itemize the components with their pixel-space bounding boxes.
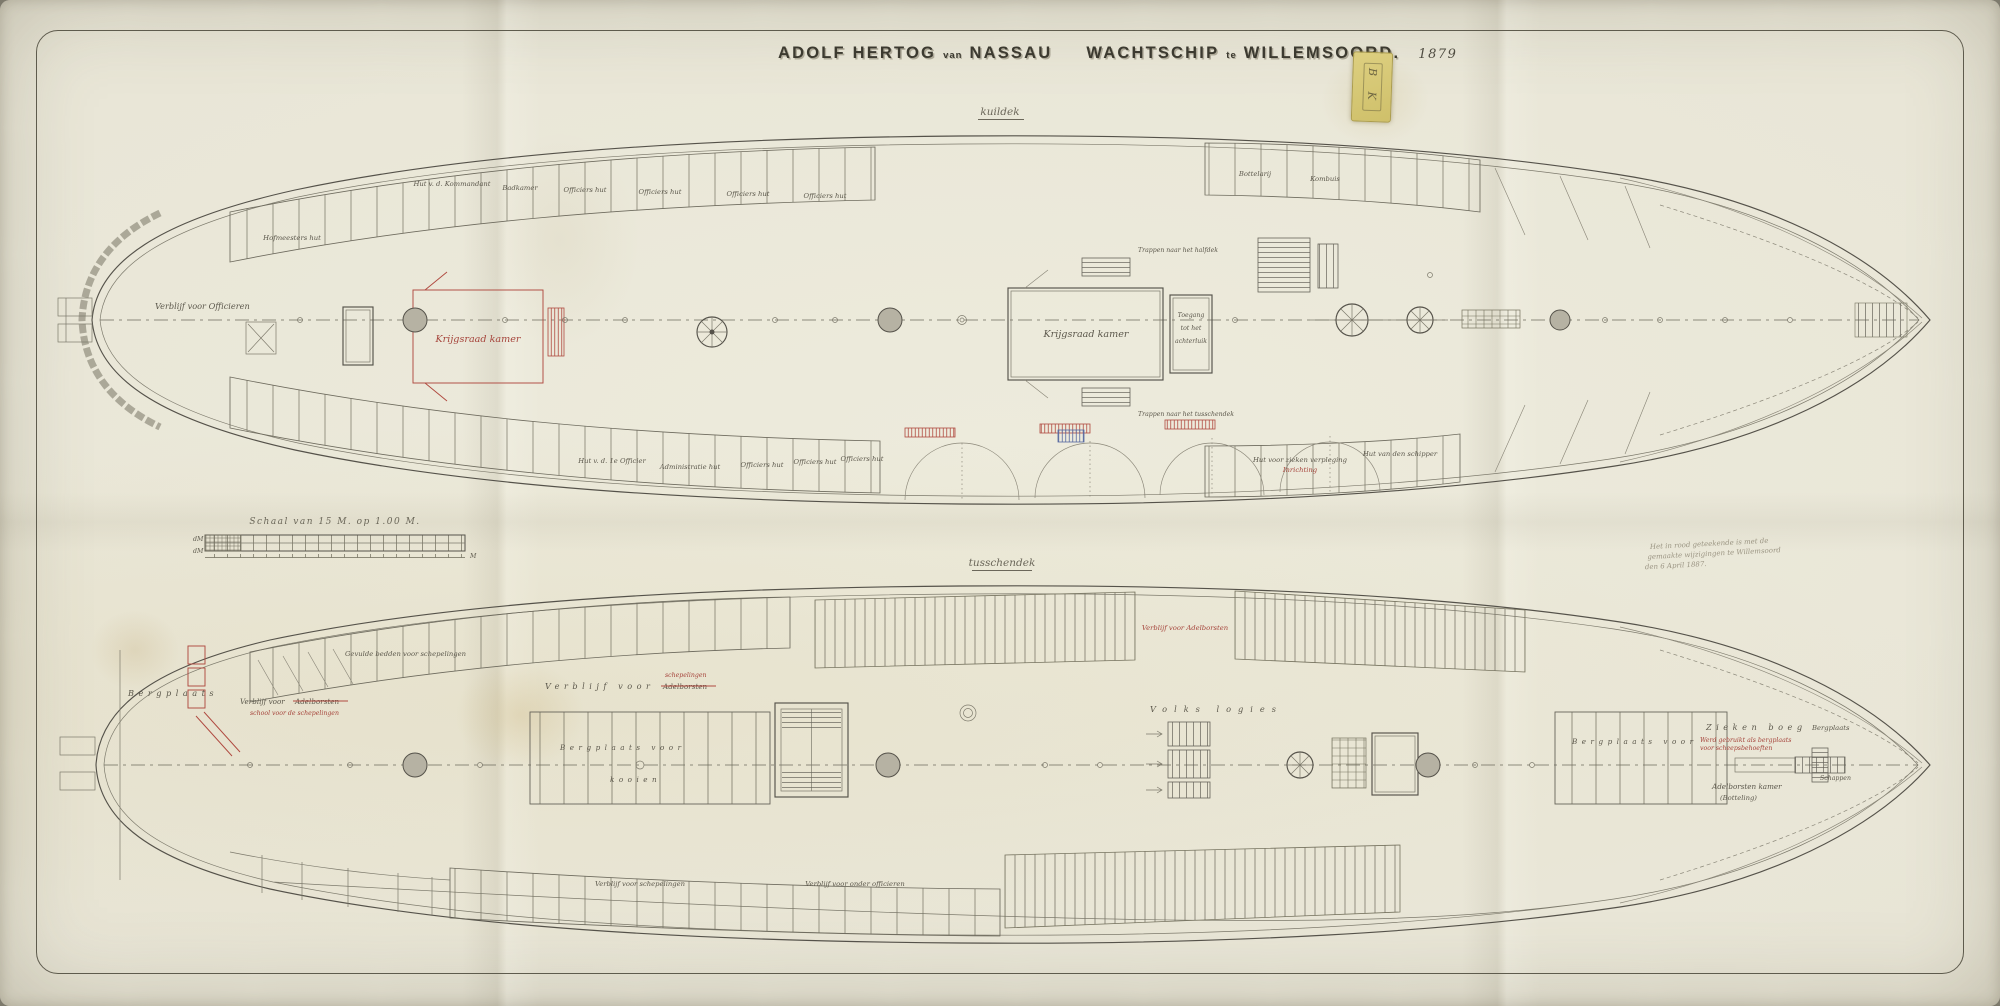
label-inrichting: Inrichting bbox=[1282, 466, 1318, 474]
adelborsten-stair-room bbox=[343, 307, 373, 365]
archival-photo: { "title": { "name1": "ADOLF HERTOG", "c… bbox=[0, 0, 2000, 1006]
label-bergplaats-voor: Bergplaats voor bbox=[1571, 737, 1698, 746]
label-trap-halfdek: Trappen naar het halfdek bbox=[1138, 247, 1218, 254]
label-schepelingen-red: schepelingen bbox=[665, 672, 706, 679]
label-verblijf-officieren: Verblijf voor Officieren bbox=[155, 301, 250, 311]
kuildek-plan: kuildek bbox=[58, 106, 1930, 504]
kuildek-cabin-band-bottom-aft bbox=[230, 377, 880, 493]
label-bergplaats-kooien: Bergplaats voor bbox=[559, 743, 686, 752]
lantern bbox=[960, 705, 976, 721]
anchor-winch-machinery bbox=[1258, 238, 1520, 336]
label-verblijf-adelborsten: Verblijf voor Adelborsten bbox=[1142, 624, 1228, 632]
capstan bbox=[697, 317, 727, 347]
label-bottelarij: Bottelarij bbox=[1238, 170, 1271, 178]
label-badkamer: Badkamer bbox=[501, 184, 538, 192]
label-hut-kommandant: Hut v. d. Kommandant bbox=[412, 180, 490, 188]
scale-bar: Schaal van 15 M. op 1.00 M. dM dM M bbox=[193, 517, 477, 560]
label-red-note-1: Werd gebruikt als bergplaats bbox=[1700, 737, 1791, 744]
label-ziekenboeg: Zieken boeg bbox=[1705, 722, 1807, 732]
scale-unit-right: M bbox=[469, 553, 477, 560]
tusschendek-deck-label: tusschendek bbox=[969, 557, 1036, 569]
scale-bar-tick-row bbox=[205, 554, 465, 558]
label-kombuis: Kombuis bbox=[1309, 175, 1340, 183]
scale-unit-left-bottom: dM bbox=[193, 548, 204, 555]
label-officiers-hut: Officiers hut bbox=[727, 190, 770, 198]
label-hut-1e-officier: Hut v. d. 1e Officier bbox=[577, 457, 646, 465]
kooi-storage-right bbox=[1555, 712, 1727, 804]
pencil-note-line3: den 6 April 1887. bbox=[1645, 560, 1707, 571]
kooi-storage-left bbox=[530, 712, 770, 804]
label-administratie-hut: Administratie hut bbox=[659, 463, 721, 471]
label-red-note-2: voor scheepsbehoeften bbox=[1700, 745, 1772, 752]
kuildek-cabin-band-bottom-fwd bbox=[1205, 434, 1460, 497]
label-trap-tusschendek: Trappen naar het tusschendek bbox=[1138, 411, 1234, 418]
label-officiers-hut: Officiers hut bbox=[804, 192, 847, 200]
main-mast-lower bbox=[876, 753, 900, 777]
hammock-rack-stack bbox=[1146, 722, 1210, 798]
label-krijgsraad-kamer-red: Krijgsraad kamer bbox=[435, 334, 522, 345]
mizzen-mast bbox=[403, 308, 427, 332]
label-officiers-hut-2: Officiers hut bbox=[841, 455, 884, 463]
label-botteling: (Botteling) bbox=[1720, 794, 1757, 802]
fore-mast-lower bbox=[1416, 753, 1440, 777]
tusschendek-plan: tusschendek bbox=[60, 557, 1930, 943]
label-toegang-3: achterluik bbox=[1175, 338, 1207, 345]
label-bergplaats-stern: Bergplaats bbox=[127, 688, 218, 698]
hammock-berths-bottom bbox=[1005, 845, 1400, 928]
toegang-room bbox=[1170, 295, 1212, 373]
kuildek-cabin-band-top-aft bbox=[230, 147, 875, 262]
stair-grid-lower bbox=[1082, 388, 1130, 406]
scale-unit-left-top: dM bbox=[193, 536, 204, 543]
label-adelborsten-kamer: Adelborsten kamer bbox=[1711, 782, 1782, 791]
stern-platform-lower bbox=[60, 737, 95, 790]
deck-fitting bbox=[1428, 273, 1433, 278]
label-volks-logies: Volks logies bbox=[1150, 704, 1283, 714]
label-officiers-hut-2: Officiers hut bbox=[741, 461, 784, 469]
label-toegang-2: tot het bbox=[1181, 325, 1202, 332]
label-school-schepelingen: school voor de schepelingen bbox=[250, 710, 339, 717]
label-adelborsten-struck-mid: Adelborsten bbox=[662, 682, 708, 691]
fore-mast bbox=[1550, 310, 1570, 330]
kooi-racks-red bbox=[905, 420, 1215, 442]
stair-grid-upper bbox=[1082, 258, 1130, 276]
label-gevulde-bedden: Gevulde bedden voor schepelingen bbox=[345, 650, 466, 658]
pencil-annotation: Het in rood geteekende is met de gemaakt… bbox=[1644, 536, 1782, 571]
label-officiers-hut: Officiers hut bbox=[639, 188, 682, 196]
paper-sheet: ADOLF HERTOG van NASSAU WACHTSCHIP te WI… bbox=[0, 0, 2000, 1006]
label-hut-zieken: Hut voor zieken verpleging bbox=[1252, 456, 1348, 464]
scale-label: Schaal van 15 M. op 1.00 M. bbox=[249, 517, 420, 527]
label-hofmeesters-hut: Hofmeesters hut bbox=[262, 234, 321, 242]
label-toegang-1: Toegang bbox=[1178, 312, 1205, 319]
kuildek-deck-label: kuildek bbox=[980, 106, 1019, 118]
label-officiers-hut-2: Officiers hut bbox=[794, 458, 837, 466]
label-verblijf-voor-mid: Verblijf voor bbox=[545, 681, 654, 691]
label-bergplaats-bow: Bergplaats bbox=[1811, 724, 1850, 732]
bergplaats-room bbox=[1372, 733, 1418, 795]
main-mast bbox=[878, 308, 902, 332]
trap-cross bbox=[246, 322, 276, 354]
label-verblijf-onderofficieren: Verblijf voor onder officieren bbox=[805, 880, 904, 888]
label-officiers-hut: Officiers hut bbox=[564, 186, 607, 194]
hammock-berths-top-aft bbox=[815, 592, 1135, 668]
label-adelborsten-struck: Adelborsten bbox=[294, 697, 340, 706]
ship-plan-drawing: kuildek bbox=[0, 0, 2000, 1006]
label-verblijf-voor: Verblijf voor bbox=[240, 697, 285, 706]
mizzen-mast-lower bbox=[403, 753, 427, 777]
locker-grid bbox=[1332, 738, 1366, 788]
main-hatch bbox=[775, 703, 848, 797]
label-schappen: Schappen bbox=[1820, 775, 1851, 782]
label-kooien: kooien bbox=[610, 775, 661, 784]
hammock-berths-top-fwd bbox=[1235, 591, 1525, 672]
capstan-lower bbox=[1287, 752, 1313, 778]
label-krijgsraad-kamer: Krijgsraad kamer bbox=[1043, 329, 1130, 340]
label-hut-schipper: Hut van den schipper bbox=[1362, 450, 1438, 458]
label-verblijf-schepelingen: Verblijf voor schepelingen bbox=[595, 880, 685, 888]
